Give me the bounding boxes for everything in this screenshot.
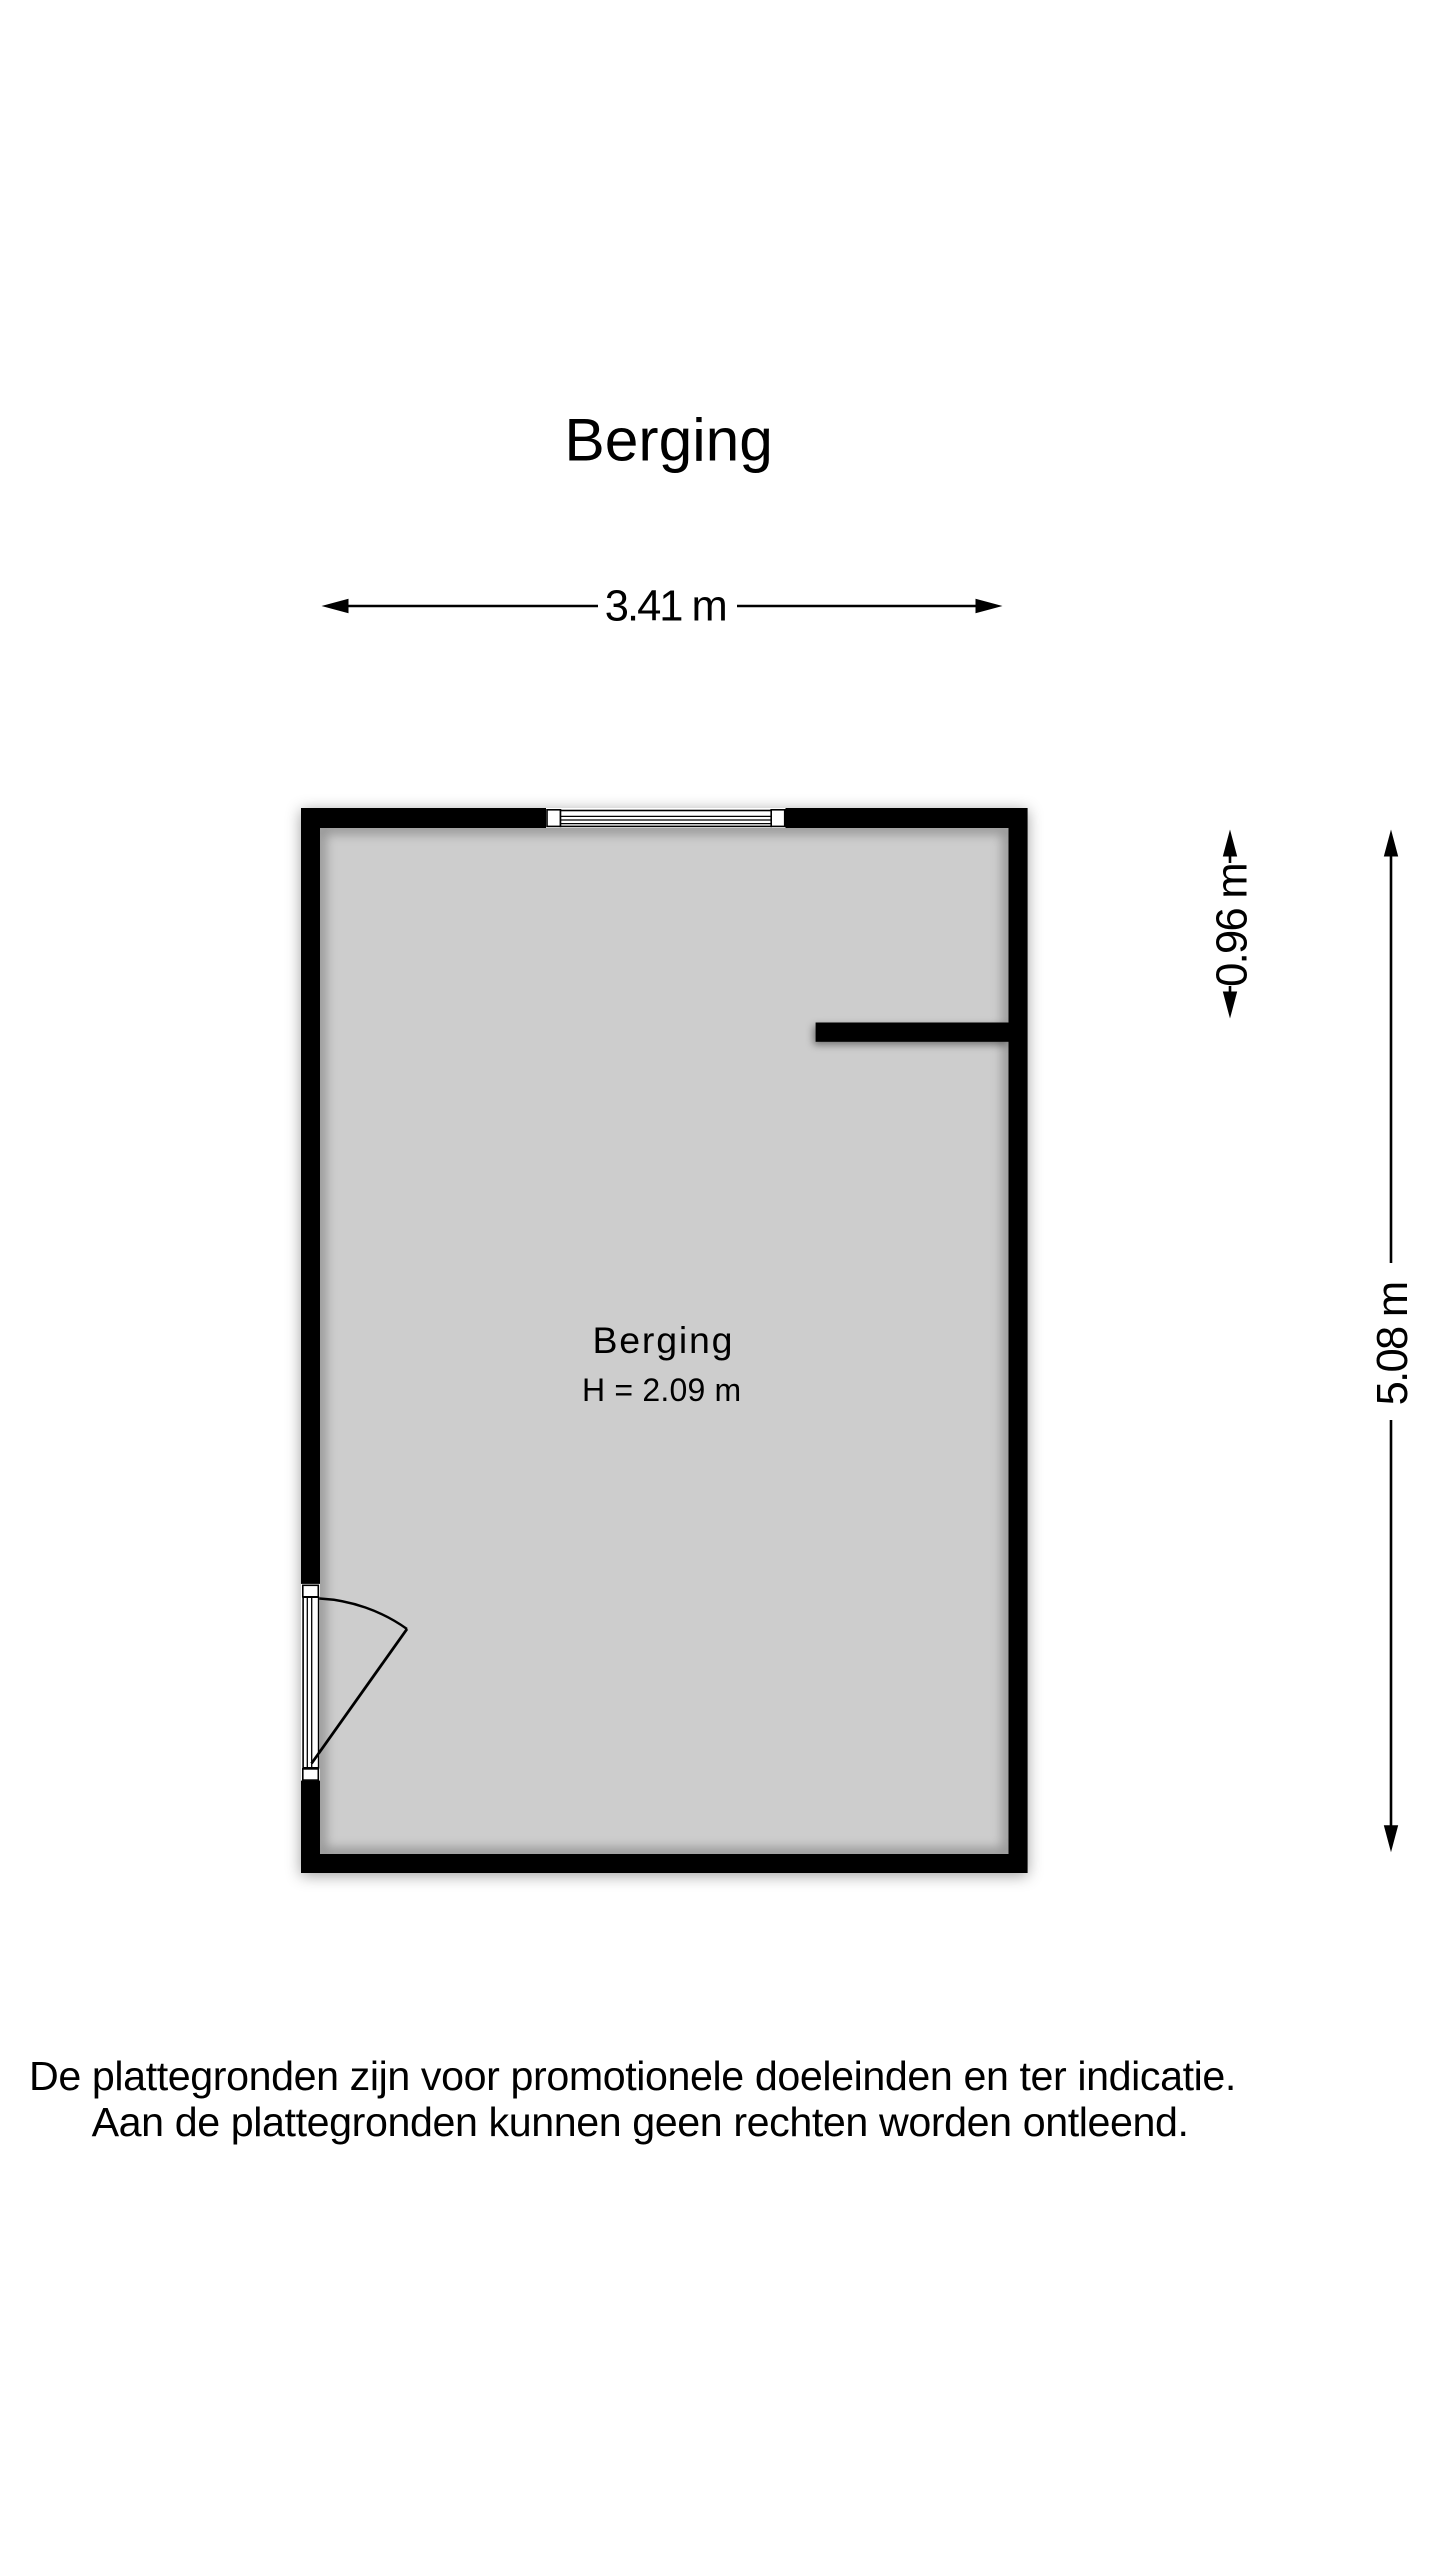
svg-text:De plattegronden zijn voor pro: De plattegronden zijn voor promotionele …: [29, 2053, 1236, 2099]
svg-text:Berging: Berging: [592, 1319, 734, 1361]
svg-text:H = 2.09 m: H = 2.09 m: [582, 1372, 741, 1408]
svg-text:Aan de plattegronden kunnen ge: Aan de plattegronden kunnen geen rechten…: [92, 2099, 1189, 2145]
svg-text:Berging: Berging: [564, 406, 773, 474]
svg-text:3.41 m: 3.41 m: [605, 583, 726, 631]
svg-text:0.96 m: 0.96 m: [1208, 864, 1256, 987]
svg-text:5.08 m: 5.08 m: [1369, 1283, 1417, 1406]
